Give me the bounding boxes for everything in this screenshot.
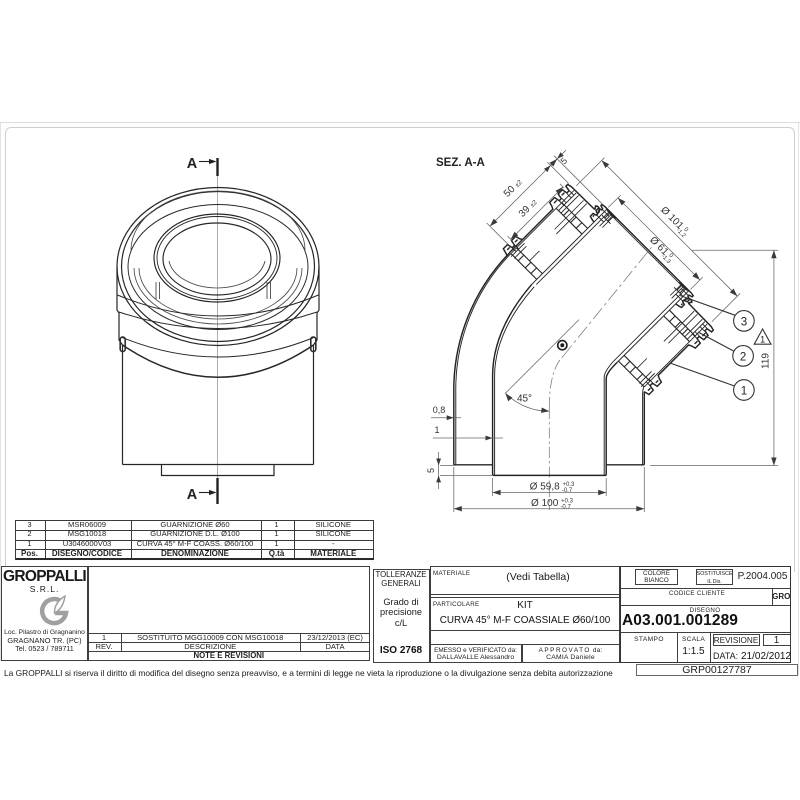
svg-text:Ø 59,8 +0.3-0.7: Ø 59,8 +0.3-0.7 <box>530 482 575 495</box>
svg-text:A: A <box>187 487 198 503</box>
svg-text:1: 1 <box>760 335 765 345</box>
svg-text:119: 119 <box>761 353 772 369</box>
svg-text:Ø 100 +0.3-0.7: Ø 100 +0.3-0.7 <box>531 498 574 511</box>
svg-text:A: A <box>187 156 198 172</box>
svg-text:1: 1 <box>434 425 439 435</box>
svg-text:0,8: 0,8 <box>433 405 446 415</box>
svg-text:50 ±2: 50 ±2 <box>502 177 525 200</box>
svg-text:Ø 61 0-1.3: Ø 61 0-1.3 <box>646 235 677 266</box>
svg-text:3: 3 <box>741 316 747 328</box>
svg-text:2: 2 <box>740 351 746 363</box>
svg-text:39 ±2: 39 ±2 <box>517 197 540 220</box>
svg-text:5: 5 <box>559 156 570 167</box>
svg-text:5: 5 <box>426 468 436 473</box>
svg-text:Ø 101 0-1.2: Ø 101 0-1.2 <box>657 205 692 240</box>
svg-text:1: 1 <box>741 386 747 398</box>
svg-text:SEZ. A-A: SEZ. A-A <box>436 157 485 169</box>
svg-text:45°: 45° <box>517 394 532 405</box>
